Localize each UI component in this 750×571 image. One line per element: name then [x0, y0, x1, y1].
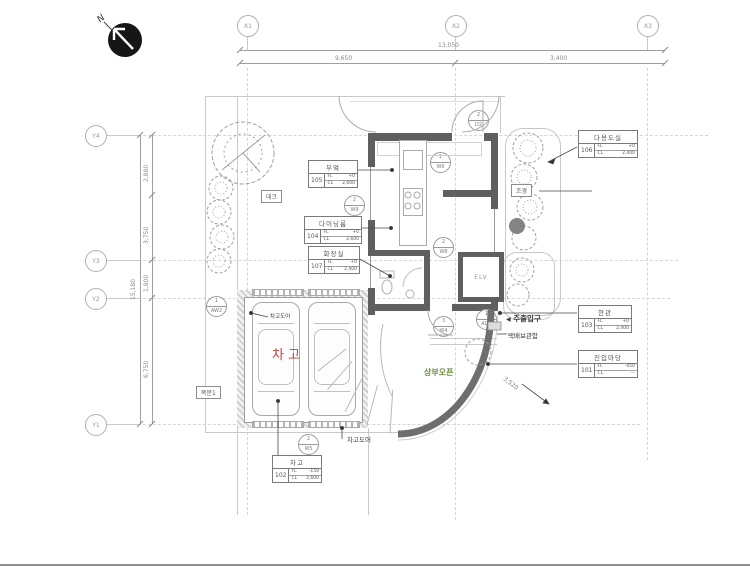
site-top-line — [205, 96, 505, 97]
tag-w8: 2W8 — [433, 237, 454, 258]
open-above-text: 상부오픈 — [424, 367, 453, 378]
north-arrow-icon — [104, 22, 142, 57]
fl-label: FL — [597, 364, 602, 370]
room-number: 105 — [309, 174, 325, 187]
cl-label: CL — [597, 371, 603, 377]
dim-left-seg1: 2,880 — [143, 165, 150, 182]
cl-value: 2,600 — [342, 181, 355, 187]
room-label-yard: 진입마당 101 FL-450 CL— — [578, 350, 638, 378]
deck-right-edge — [500, 96, 501, 133]
window-left-lower — [370, 252, 371, 288]
fl-value: +0 — [352, 230, 359, 236]
grid-bubble-y3: Y3 — [85, 250, 107, 272]
tag-w9-code: W9 — [345, 206, 364, 215]
cl-value: 2,600 — [306, 476, 319, 482]
wall-top-b — [484, 133, 498, 141]
elevator-label: ELV — [474, 274, 488, 281]
tag-w4: 3W4 — [433, 316, 454, 337]
tag-d2: 2D2 — [468, 110, 489, 131]
dim-line-top-segments — [240, 63, 665, 64]
fl-value: +0 — [622, 319, 629, 325]
fl-label: FL — [597, 144, 602, 150]
fl-value: -150 — [309, 469, 319, 475]
grid-line-y2 — [108, 298, 670, 299]
fl-value: -450 — [625, 364, 635, 370]
dim-line-left-segments — [152, 135, 153, 424]
room-label-utility: 다용도실 106 FL+0 CL2,400 — [578, 130, 638, 158]
cl-value: — — [631, 371, 636, 377]
room-name: 현관 — [579, 306, 631, 319]
grid-bubble-x3: X3 — [637, 15, 659, 37]
entrance-pointer-icon: ◀ — [506, 316, 511, 323]
room-name: 부엌 — [309, 161, 357, 174]
room-label-entrance: 현관 103 FL+0 CL2,400 — [578, 305, 632, 333]
dim-top-seg1: 9,650 — [335, 55, 352, 62]
dim-left-total: 15,180 — [130, 279, 137, 300]
cl-value: 2,400 — [344, 267, 357, 273]
tag-w9-num: 2 — [345, 196, 364, 206]
grid-line-y3 — [108, 260, 678, 261]
compass-label: N — [96, 13, 108, 25]
planting-bed-lower — [503, 252, 555, 320]
wall-left-a — [368, 141, 375, 167]
grid-label-x3: X3 — [644, 23, 652, 30]
grid-line-y1 — [108, 424, 640, 425]
bath-fixtures — [380, 271, 414, 298]
cl-label: CL — [597, 151, 603, 157]
plan-linework — [0, 0, 750, 571]
bubble-tick-y1 — [105, 424, 140, 425]
grid-label-y2: Y2 — [92, 296, 99, 303]
fl-value: +0 — [350, 260, 357, 266]
garage-extension-left — [237, 428, 238, 515]
bubble-tick-y4 — [105, 135, 140, 136]
room-number: 104 — [305, 230, 321, 243]
wall-bath-top — [368, 250, 430, 256]
garage-room-text: 차고 — [272, 344, 304, 363]
room-name: 차고 — [273, 456, 321, 469]
tag-d2-num: 2 — [469, 111, 488, 121]
entry-step-1 — [430, 338, 497, 339]
main-entrance-label: 주출입구 — [513, 314, 541, 323]
fl-label: FL — [327, 260, 332, 266]
tag-w4-code: W4 — [434, 327, 453, 336]
car-right-cabin — [314, 329, 350, 385]
site-bottom-line — [205, 432, 400, 433]
fl-label: FL — [327, 174, 332, 180]
grid-label-y3: Y3 — [92, 258, 99, 265]
room-number: 103 — [579, 319, 595, 332]
wall-divider-utility — [443, 190, 498, 197]
scan-bottom-edge — [0, 564, 750, 566]
grid-label-x1: X1 — [244, 23, 252, 30]
side-door-label-box: 쪽문1 — [196, 386, 221, 399]
room-number: 102 — [273, 469, 289, 482]
car-left-windshield — [258, 323, 294, 324]
cl-label: CL — [327, 181, 333, 187]
grid-line-x3 — [647, 68, 648, 460]
garage-door-strip-top-left — [252, 289, 304, 296]
site-left-line — [205, 96, 206, 432]
tag-ad1-num: 1 — [477, 310, 496, 320]
room-name: 화장실 — [309, 247, 359, 260]
kitchen-counter — [377, 142, 482, 156]
tag-aw2: 1AW2 — [206, 296, 227, 317]
wall-bath-right — [424, 250, 430, 310]
tag-aw2-num: 1 — [207, 297, 226, 307]
garage-door-bottom-text: 차고도어 — [347, 434, 371, 444]
wall-right-b — [491, 197, 498, 209]
tag-ad1-code: AD1 — [477, 320, 496, 329]
bubble-tick-x1 — [247, 35, 248, 50]
cl-value: 2,400 — [616, 326, 629, 332]
tag-w4-num: 3 — [434, 317, 453, 327]
tag-d2-code: D2 — [469, 121, 488, 130]
tag-w6-code: W6 — [431, 163, 450, 172]
fl-value: +0 — [628, 144, 635, 150]
tag-ad1: 1AD1 — [476, 309, 497, 330]
garage-door-strip-top-right — [308, 289, 360, 296]
grid-bubble-y1: Y1 — [85, 414, 107, 436]
cl-label: CL — [597, 326, 603, 332]
dim-left-seg4: 6,750 — [143, 361, 150, 378]
garage-door-top-text: 차고도어 — [270, 312, 290, 320]
fl-label: FL — [291, 469, 296, 475]
room-name: 다용도실 — [579, 131, 637, 144]
deck-edge-line — [237, 96, 238, 290]
entry-step-2 — [430, 344, 497, 345]
room-label-kitchen: 부엌 105 FL+0 CL2,600 — [308, 160, 358, 188]
fl-label: FL — [597, 319, 602, 325]
room-number: 107 — [309, 260, 325, 273]
deck-label-box: 데크 — [261, 190, 282, 203]
porch-slab-line — [350, 101, 500, 102]
cl-label: CL — [323, 237, 329, 243]
grid-label-y4: Y4 — [92, 133, 99, 140]
garage-door-strip-bottom-right — [308, 421, 360, 428]
tag-w9: 2W9 — [344, 195, 365, 216]
cl-label: CL — [291, 476, 297, 482]
wall-right-a — [491, 141, 498, 197]
room-label-dining: 다이닝룸 104 FL+0 CL2,600 — [304, 216, 362, 244]
room-name: 진입마당 — [579, 351, 637, 364]
cl-label: CL — [327, 267, 333, 273]
tag-aw2-code: AW2 — [207, 307, 226, 316]
tag-w8-code: W8 — [434, 248, 453, 257]
garage-door-strip-bottom-left — [252, 421, 304, 428]
dim-line-left-total — [140, 135, 141, 424]
grid-bubble-y4: Y4 — [85, 125, 107, 147]
kitchen-cooktop — [403, 188, 423, 216]
floor-plan-drawing: ELV — [0, 0, 750, 571]
tag-w5-code: W5 — [299, 445, 318, 454]
fl-value: +0 — [348, 174, 355, 180]
dim-top-total: 13,050 — [438, 42, 459, 49]
cl-value: 2,400 — [622, 151, 635, 157]
car-left-rear — [258, 391, 294, 392]
parcel-box-text: 택배보관함 — [508, 330, 538, 340]
grid-bubble-x1: X1 — [237, 15, 259, 37]
room-number: 106 — [579, 144, 595, 157]
wall-left-b — [368, 220, 375, 252]
dim-ramp: 3,520 — [502, 376, 520, 392]
cl-value: 2,600 — [346, 237, 359, 243]
bath-door-arc — [403, 268, 422, 287]
dim-left-seg2: 3,750 — [143, 227, 150, 244]
room-number: 101 — [579, 364, 595, 377]
tag-w5: 2W5 — [298, 434, 319, 455]
grid-label-y1: Y1 — [92, 422, 99, 429]
car-right — [308, 302, 356, 416]
grid-bubble-y2: Y2 — [85, 288, 107, 310]
landscape-label-box: 조경 — [511, 184, 532, 197]
window-left-upper — [370, 167, 371, 220]
main-entrance-text: ◀ 주출입구 — [506, 313, 541, 324]
room-label-garage: 차고 102 FL-150 CL2,600 — [272, 455, 322, 483]
grid-bubble-x2: X2 — [445, 15, 467, 37]
car-right-rear — [314, 391, 350, 392]
dim-top-seg2: 3,400 — [550, 55, 567, 62]
room-name: 다이닝룸 — [305, 217, 361, 230]
kitchen-sink — [403, 150, 423, 170]
car-right-windshield — [314, 323, 350, 324]
tag-w5-num: 2 — [299, 435, 318, 445]
room-label-bath: 화장실 107 FL+0 CL2,400 — [308, 246, 360, 274]
tag-w8-num: 2 — [434, 238, 453, 248]
fl-label: FL — [323, 230, 328, 236]
bubble-tick-x3 — [647, 35, 648, 50]
elevator-shaft: ELV — [458, 252, 504, 302]
grid-label-x2: X2 — [452, 23, 460, 30]
dim-left-seg3: 1,800 — [143, 275, 150, 292]
dim-line-top-total — [240, 50, 665, 51]
wall-bottom-a — [368, 304, 430, 311]
bubble-tick-y3 — [105, 260, 140, 261]
